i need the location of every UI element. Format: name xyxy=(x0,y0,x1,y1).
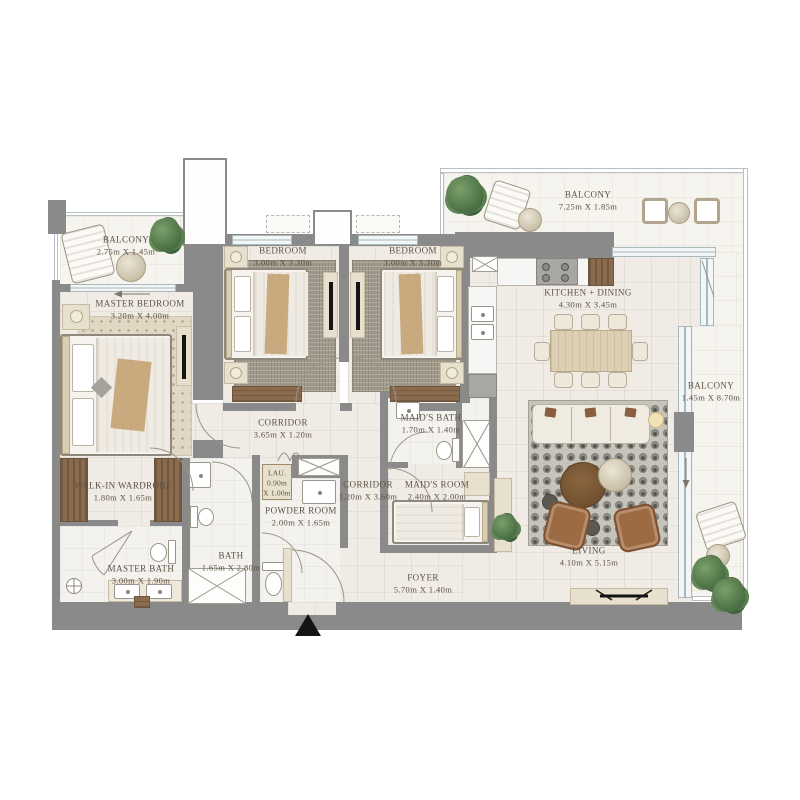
wall-bedroom-divider xyxy=(339,246,349,362)
bedroom-2-window xyxy=(358,235,418,245)
label-balcony-top: BALCONY 7.25m X 1.85m xyxy=(559,190,618,213)
master-throw xyxy=(110,358,151,431)
room-name: MAID'S ROOM xyxy=(405,480,469,492)
room-name: FOYER xyxy=(394,573,453,585)
bedroom-2-bed xyxy=(380,268,464,360)
balcony-right-floor-upper xyxy=(712,252,744,326)
bedroom-2-dresser xyxy=(390,386,460,402)
cushion-seam xyxy=(610,407,611,441)
floor-lamp xyxy=(648,412,664,428)
kitchen-sink-2 xyxy=(471,324,494,340)
kitchen-window xyxy=(612,247,716,257)
living-balcony-window xyxy=(678,326,692,598)
room-name: BEDROOM xyxy=(254,246,313,258)
pillow xyxy=(234,276,251,312)
room-name: CORRIDOR xyxy=(339,480,398,492)
wall-balcony-corner xyxy=(48,200,66,234)
room-dims: 0.90m xyxy=(263,478,291,488)
plant xyxy=(492,514,518,540)
plant xyxy=(446,176,484,214)
cushion-seam xyxy=(571,407,572,441)
dining-chair xyxy=(581,314,600,330)
bedroom-2-tv-panel xyxy=(350,272,365,338)
pillow xyxy=(437,276,454,312)
linen-shelf xyxy=(298,458,340,476)
balcony-chair xyxy=(694,198,720,224)
room-dims: 2.40m X 2.00m xyxy=(405,491,469,502)
bedroom-1-window xyxy=(232,235,292,245)
bed-throw xyxy=(265,274,290,355)
master-headboard xyxy=(62,336,70,454)
powder-sink xyxy=(302,480,336,504)
label-balcony-tl: BALCONY 2.75m X 1.45m xyxy=(97,235,156,258)
room-dims: X 1.00m xyxy=(263,488,291,498)
bedroom-1-lamp-bottom xyxy=(230,367,242,379)
room-name: LAU. xyxy=(263,468,291,478)
bath-sink xyxy=(189,462,211,488)
powder-toilet-bowl xyxy=(265,572,282,596)
bathtub xyxy=(188,568,246,604)
burner xyxy=(542,263,550,271)
wall-master-top-a xyxy=(52,284,70,292)
room-dims: 5.70m X 1.40m xyxy=(394,584,453,595)
balcony-table xyxy=(518,208,542,232)
label-corridor-2: CORRIDOR 1.20m X 3.60m xyxy=(339,480,398,503)
room-dims: 1.20m X 3.60m xyxy=(339,491,398,502)
wall-master-right xyxy=(193,246,223,400)
drain xyxy=(481,313,485,317)
entrance-arrow-icon xyxy=(295,614,321,636)
sofa xyxy=(532,404,650,444)
headboard xyxy=(226,270,232,358)
drain xyxy=(199,474,203,478)
wall-maids-left xyxy=(380,398,388,553)
master-bed xyxy=(60,334,172,456)
room-name: MASTER BATH xyxy=(108,564,175,576)
wall-corridor-b xyxy=(340,403,352,411)
label-laundry: LAU. 0.90m X 1.00m xyxy=(263,468,291,497)
wall-living-pier2 xyxy=(674,412,694,452)
room-name: KITCHEN + DINING xyxy=(544,288,631,300)
dining-chair xyxy=(632,342,648,361)
headboard xyxy=(456,270,462,358)
dining-chair xyxy=(534,342,550,361)
label-kitchen-dining: KITCHEN + DINING 4.30m X 3.45m xyxy=(544,288,631,311)
kitchen-shelf-box xyxy=(472,256,498,272)
balcony-chair xyxy=(642,198,668,224)
floor-plan-canvas: BALCONY 2.75m X 1.45m MASTER BEDROOM 3.2… xyxy=(0,0,800,800)
kitchen-cabinet xyxy=(588,258,614,286)
sofa-pillow xyxy=(544,407,556,417)
bedroom-2-tv xyxy=(356,282,360,330)
room-dims: 7.25m X 1.85m xyxy=(559,201,618,212)
room-dims: 1.45m X 8.70m xyxy=(682,392,741,403)
dining-chair xyxy=(554,314,573,330)
dishwasher xyxy=(468,374,497,398)
room-dims: 4.30m X 3.45m xyxy=(544,299,631,310)
service-shaft-1 xyxy=(183,158,227,246)
bedroom-1-tv-panel xyxy=(323,272,338,338)
maids-toilet-bowl xyxy=(436,441,452,460)
room-name: BEDROOM xyxy=(384,246,443,258)
drain xyxy=(481,331,485,335)
master-toilet-bowl xyxy=(150,543,167,562)
balcony-tl-top-rail xyxy=(58,212,184,216)
pillow xyxy=(72,344,94,392)
ac-ledge-1 xyxy=(266,215,310,233)
label-bath: BATH 1.65m X 2.80m xyxy=(202,551,261,574)
maids-bed xyxy=(392,500,490,544)
bedroom-2-lamp-top xyxy=(446,251,458,263)
duvet xyxy=(396,504,464,540)
wall-maids-partition xyxy=(388,462,408,468)
master-toilet-tank xyxy=(168,540,176,564)
dining-table xyxy=(550,330,632,372)
room-name: MASTER BEDROOM xyxy=(95,299,184,311)
ac-ledge-2 xyxy=(356,215,400,233)
room-dims: 1.80m X 1.65m xyxy=(74,492,171,503)
room-name: MAID'S BATH xyxy=(401,413,462,425)
dining-chair xyxy=(581,372,600,388)
label-bedroom-1: BEDROOM 3.00m X 3.30m xyxy=(254,246,313,269)
plant xyxy=(712,578,746,612)
room-dims: 1.65m X 2.80m xyxy=(202,562,261,573)
bath-stool xyxy=(134,596,150,608)
wall-master-right-stub xyxy=(193,440,223,458)
kitchen-sink-1 xyxy=(471,306,494,322)
label-powder-room: POWDER ROOM 2.00m X 1.65m xyxy=(265,506,337,529)
burner xyxy=(561,263,569,271)
label-corridor-1: CORRIDOR 3.65m X 1.20m xyxy=(254,418,313,441)
room-name: CORRIDOR xyxy=(254,418,313,430)
bedroom-1-bed xyxy=(224,268,308,360)
label-walk-in-wardrobe: WALK-IN WARDROBE 1.80m X 1.65m xyxy=(74,481,171,504)
wall-kitchen-top xyxy=(455,232,614,258)
burner xyxy=(542,274,550,282)
room-dims: 4.10m X 5.15m xyxy=(560,557,619,568)
armchair-right xyxy=(612,502,662,554)
master-tv xyxy=(182,335,186,379)
pillow xyxy=(234,316,251,352)
label-living: LIVING 4.10m X 5.15m xyxy=(560,546,619,569)
room-name: BATH xyxy=(202,551,261,563)
pillow xyxy=(437,316,454,352)
maids-toilet-tank xyxy=(452,438,460,462)
room-dims: 1.70m X 1.40m xyxy=(401,424,462,435)
headboard xyxy=(482,502,488,542)
room-dims: 3.20m X 4.00m xyxy=(95,310,184,321)
room-name: BALCONY xyxy=(559,190,618,202)
balcony-top-rail xyxy=(440,168,748,173)
room-name: BALCONY xyxy=(97,235,156,247)
drain xyxy=(318,491,322,495)
bedroom-1-lamp-top xyxy=(230,251,242,263)
pillow xyxy=(464,507,480,537)
bath-toilet-tank xyxy=(190,506,198,528)
tv-console xyxy=(570,588,668,605)
label-bedroom-2: BEDROOM 3.00m X 3.30m xyxy=(384,246,443,269)
room-dims: 3.00m X 3.30m xyxy=(384,257,443,268)
dining-balcony-door xyxy=(700,258,714,326)
wall-corridor-a xyxy=(223,403,296,411)
maids-shower xyxy=(462,420,490,468)
master-tv-panel xyxy=(176,326,192,386)
room-dims: 3.00m X 3.30m xyxy=(254,257,313,268)
shower-head xyxy=(66,578,82,594)
room-dims: 2.00m X 1.65m xyxy=(265,517,337,528)
bedroom-1-tv xyxy=(329,282,333,330)
room-dims: 3.65m X 1.20m xyxy=(254,429,313,440)
room-dims: 3.00m X 1.90m xyxy=(108,575,175,586)
stove xyxy=(536,258,578,285)
master-balcony-window xyxy=(70,284,176,292)
room-name: WALK-IN WARDROBE xyxy=(74,481,171,493)
label-master-bedroom: MASTER BEDROOM 3.20m X 4.00m xyxy=(95,299,184,322)
wall-left xyxy=(52,280,60,602)
dining-chair xyxy=(608,372,627,388)
wall-maids-bottom xyxy=(380,545,497,553)
room-dims: 2.75m X 1.45m xyxy=(97,246,156,257)
label-master-bath: MASTER BATH 3.00m X 1.90m xyxy=(108,564,175,587)
master-lamp xyxy=(70,310,83,323)
room-name: POWDER ROOM xyxy=(265,506,337,518)
bath-toilet-bowl xyxy=(198,508,214,526)
label-balcony-right: BALCONY 1.45m X 8.70m xyxy=(682,381,741,404)
bed-throw xyxy=(399,274,424,355)
room-name: BALCONY xyxy=(682,381,741,393)
balcony-table xyxy=(668,202,690,224)
pillow xyxy=(72,398,94,446)
service-shaft-2 xyxy=(313,210,352,246)
wall-bottom xyxy=(52,602,742,630)
sofa-pillow xyxy=(585,407,597,417)
label-maids-room: MAID'S ROOM 2.40m X 2.00m xyxy=(405,480,469,503)
wall-bath-right xyxy=(252,455,260,602)
label-maids-bath: MAID'S BATH 1.70m X 1.40m xyxy=(401,413,462,436)
burner xyxy=(561,274,569,282)
entry-door-leaf xyxy=(283,548,292,602)
dining-chair xyxy=(608,314,627,330)
coffee-table-marble xyxy=(598,458,632,492)
label-foyer: FOYER 5.70m X 1.40m xyxy=(394,573,453,596)
bedroom-2-lamp-bottom xyxy=(446,367,458,379)
sofa-pillow xyxy=(624,407,636,417)
room-name: LIVING xyxy=(560,546,619,558)
bedroom-1-dresser xyxy=(232,386,302,402)
dining-chair xyxy=(554,372,573,388)
drain xyxy=(126,590,130,594)
powder-toilet-tank xyxy=(262,562,284,571)
drain xyxy=(158,590,162,594)
